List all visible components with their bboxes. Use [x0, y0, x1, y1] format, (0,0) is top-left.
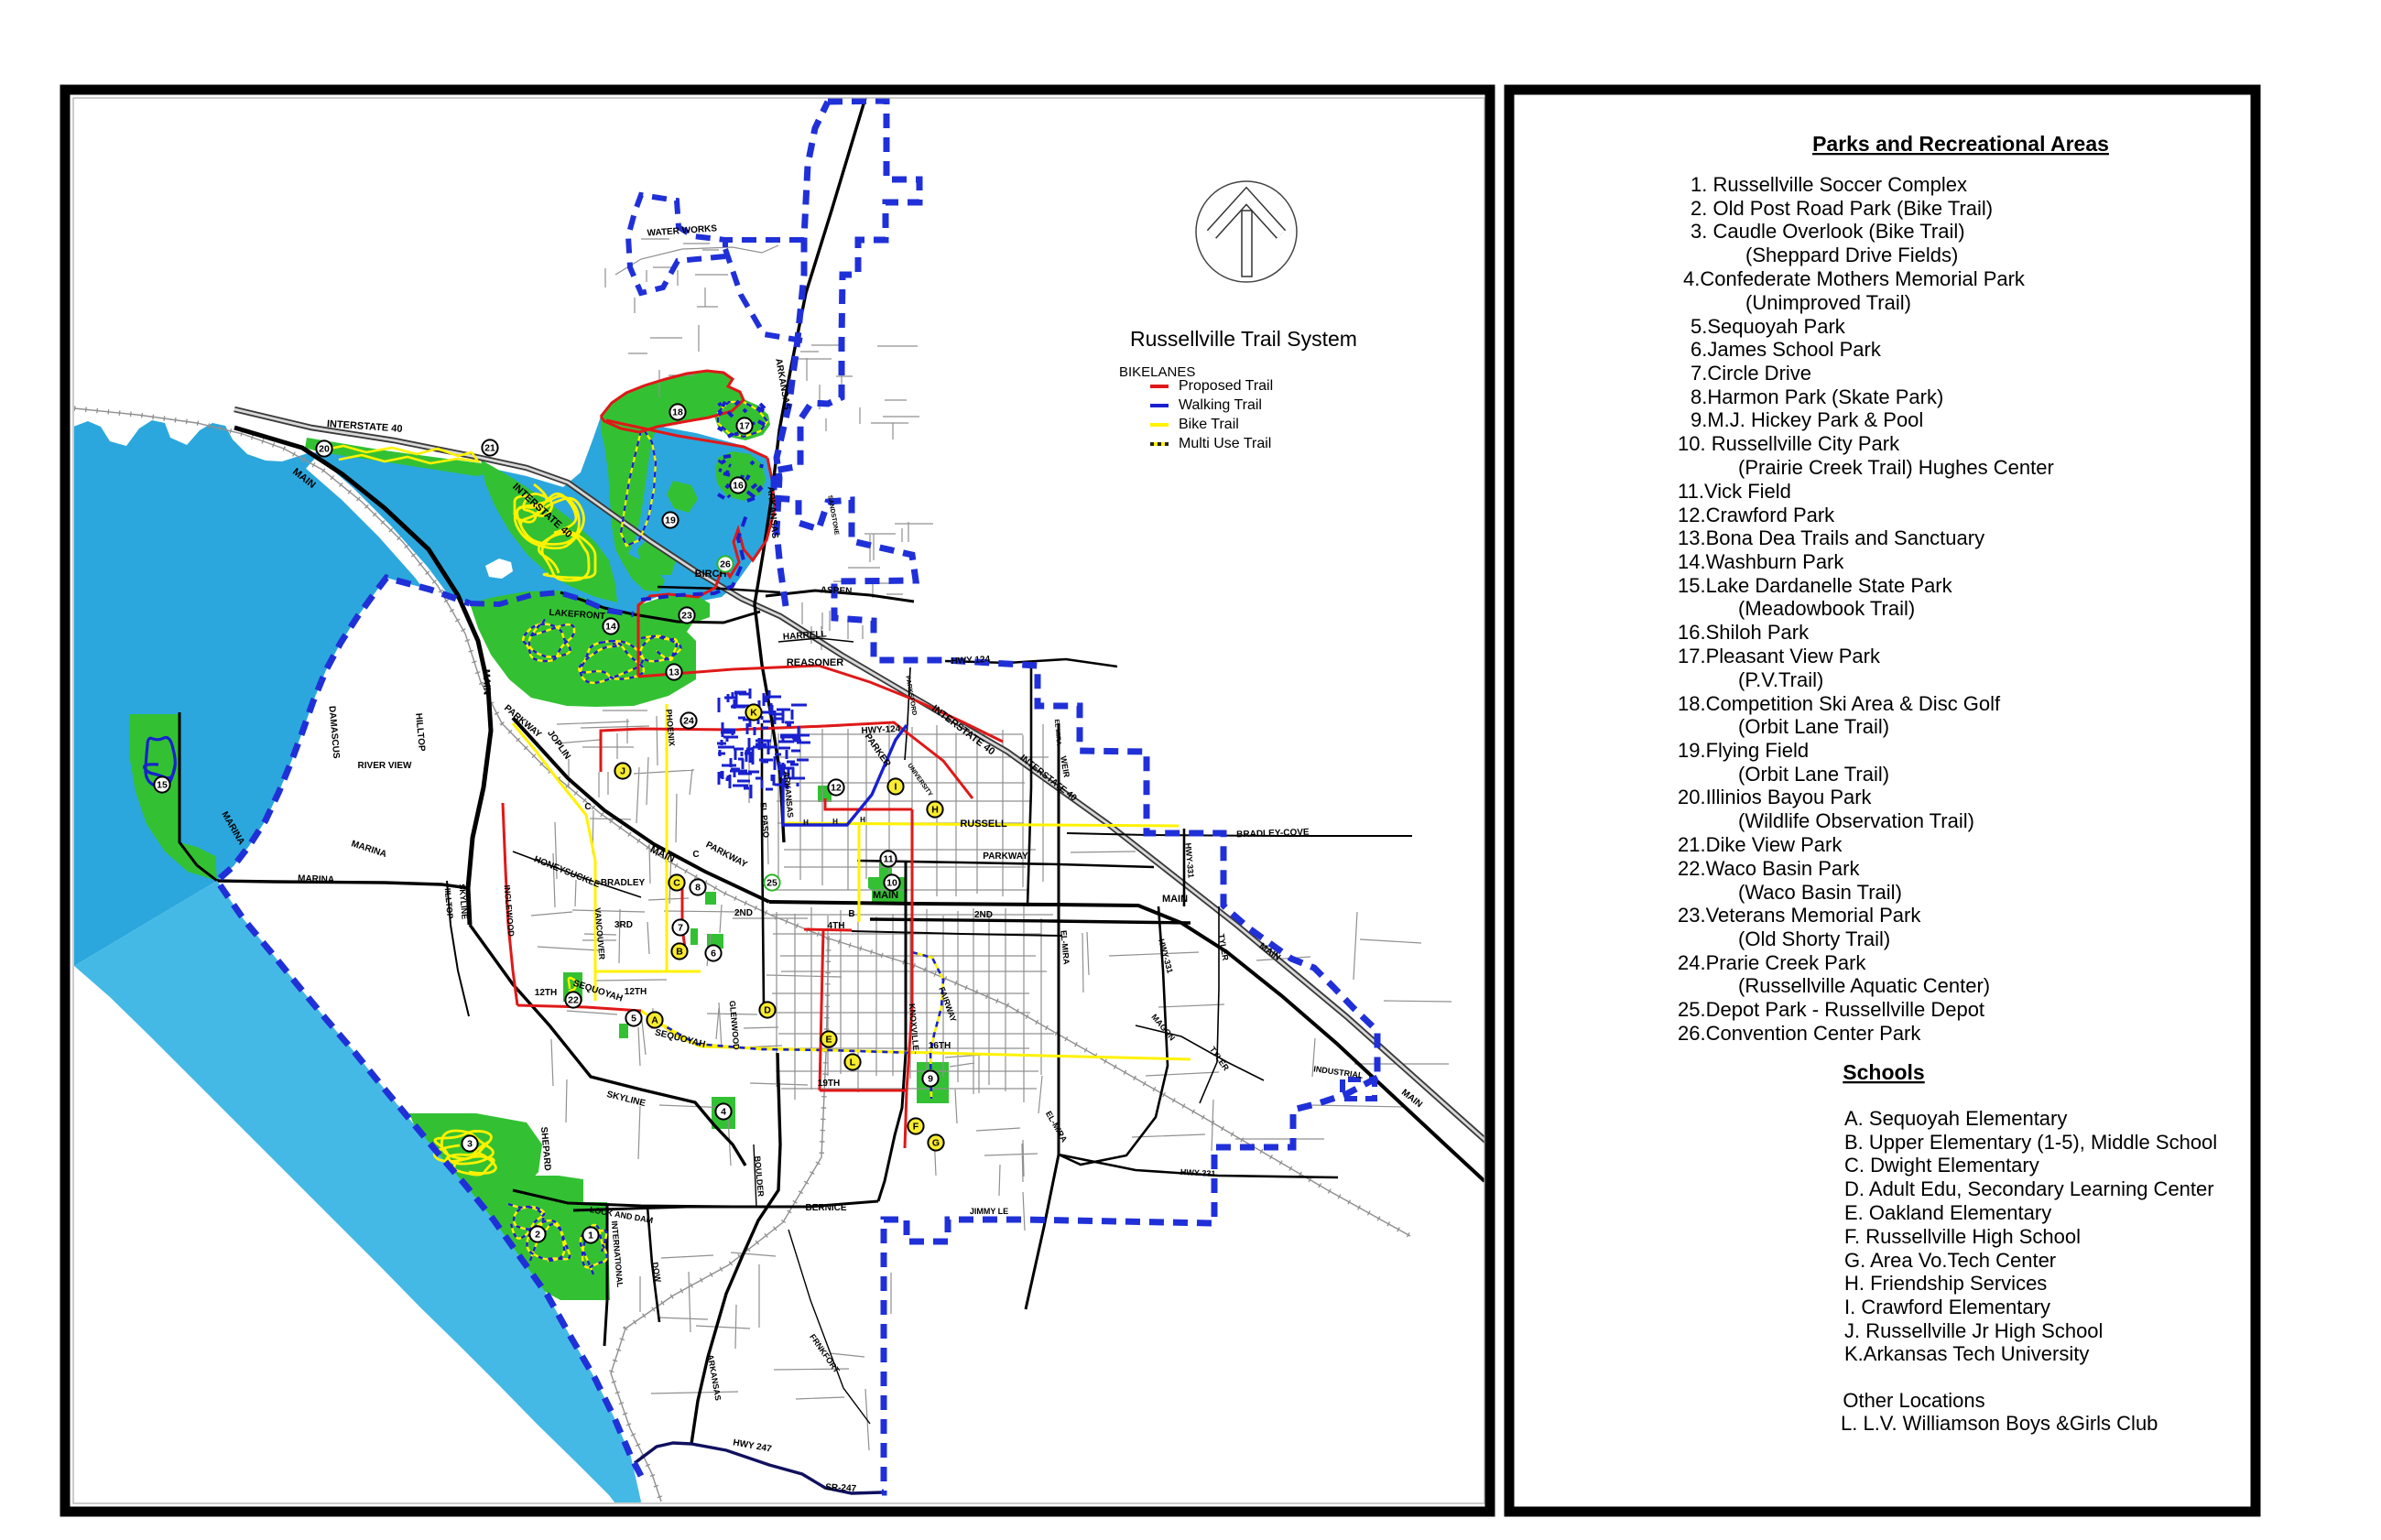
svg-text:8: 8 — [695, 883, 701, 894]
svg-text:21: 21 — [484, 443, 495, 454]
svg-text:22: 22 — [568, 995, 579, 1006]
svg-text:(Waco Basin Trail): (Waco Basin Trail) — [1738, 881, 1902, 904]
svg-text:ASPEN: ASPEN — [821, 585, 853, 596]
svg-text:H: H — [931, 805, 939, 816]
svg-text:10: 10 — [886, 878, 897, 889]
svg-text:13: 13 — [669, 667, 680, 678]
svg-text:5.Sequoyah Park: 5.Sequoyah Park — [1691, 315, 1846, 338]
svg-text:9.M.J. Hickey Park & Pool: 9.M.J. Hickey Park & Pool — [1691, 408, 1923, 431]
svg-text:(Meadowbook Trail): (Meadowbook Trail) — [1738, 597, 1915, 620]
svg-text:MARINA: MARINA — [298, 873, 334, 884]
svg-text:(Orbit Lane Trail): (Orbit Lane Trail) — [1738, 715, 1889, 738]
svg-text:6.James School Park: 6.James School Park — [1691, 338, 1882, 361]
svg-text:RUSSELL: RUSSELL — [960, 819, 1007, 830]
svg-text:Bike Trail: Bike Trail — [1179, 417, 1239, 432]
svg-text:19: 19 — [665, 515, 676, 526]
svg-text:3: 3 — [467, 1139, 473, 1150]
svg-text:C. Dwight Elementary: C. Dwight Elementary — [1844, 1154, 2039, 1177]
svg-text:1. Russellville Soccer Complex: 1. Russellville Soccer Complex — [1691, 173, 1967, 196]
svg-text:17.Pleasant View Park: 17.Pleasant View Park — [1678, 645, 1881, 667]
svg-text:26.Convention Center Park: 26.Convention Center Park — [1678, 1022, 1921, 1045]
svg-text:19TH: 19TH — [818, 1079, 840, 1089]
svg-text:JIMMY LE: JIMMY LE — [970, 1207, 1008, 1216]
svg-text:14: 14 — [605, 622, 616, 633]
svg-text:4TH: 4TH — [828, 921, 845, 931]
svg-text:24: 24 — [683, 716, 694, 727]
svg-text:F. Russellville High School: F. Russellville High School — [1844, 1225, 2081, 1248]
svg-text:16.Shiloh Park: 16.Shiloh Park — [1678, 621, 1810, 644]
svg-text:18.Competition Ski Area & Disc: 18.Competition Ski Area & Disc Golf — [1678, 692, 2001, 715]
svg-text:B. Upper Elementary (1-5), Mid: B. Upper Elementary (1-5), Middle School — [1844, 1131, 2217, 1154]
svg-text:12: 12 — [831, 783, 842, 794]
svg-text:13.Bona Dea Trails and Sanctua: 13.Bona Dea Trails and Sanctuary — [1678, 526, 1984, 549]
svg-text:Multi Use Trail: Multi Use Trail — [1179, 436, 1271, 451]
svg-text:C: C — [673, 878, 680, 889]
svg-text:15: 15 — [157, 780, 168, 791]
svg-text:L. L.V. Williamson Boys &Girls: L. L.V. Williamson Boys &Girls Club — [1841, 1412, 2158, 1435]
svg-text:2ND: 2ND — [734, 908, 753, 918]
svg-text:B: B — [676, 947, 683, 958]
svg-text:HWY-331: HWY-331 — [1180, 1167, 1216, 1178]
svg-text:9: 9 — [928, 1074, 933, 1085]
svg-text:(Wildlife Observation Trail): (Wildlife Observation Trail) — [1738, 809, 1974, 832]
svg-text:20.Illinios Bayou Park: 20.Illinios Bayou Park — [1678, 786, 1873, 808]
svg-text:11: 11 — [883, 854, 893, 865]
svg-text:5: 5 — [631, 1014, 636, 1025]
svg-text:24.Prarie Creek Park: 24.Prarie Creek Park — [1678, 951, 1866, 974]
svg-text:MAIN: MAIN — [481, 669, 493, 696]
svg-text:(Sheppard Drive Fields): (Sheppard Drive Fields) — [1745, 244, 1958, 266]
svg-text:MAIN: MAIN — [873, 890, 898, 901]
svg-text:12.Crawford Park: 12.Crawford Park — [1678, 504, 1835, 526]
svg-text:F: F — [913, 1122, 919, 1133]
svg-text:10. Russellville City Park: 10. Russellville City Park — [1678, 432, 1900, 455]
svg-text:12TH: 12TH — [625, 987, 647, 997]
svg-text:26: 26 — [720, 559, 731, 570]
svg-text:19.Flying Field: 19.Flying Field — [1678, 739, 1809, 762]
svg-text:H: H — [803, 819, 809, 827]
svg-text:C: C — [584, 802, 591, 812]
svg-text:BRADLEY: BRADLEY — [601, 878, 646, 888]
svg-text:17: 17 — [739, 421, 750, 432]
svg-text:16TH: 16TH — [929, 1041, 951, 1051]
svg-text:E: E — [825, 1035, 832, 1046]
svg-text:6: 6 — [711, 949, 716, 960]
svg-text:HWY 124: HWY 124 — [951, 655, 991, 667]
svg-text:K.Arkansas Tech University: K.Arkansas Tech University — [1844, 1342, 2089, 1365]
svg-text:RIVER VIEW: RIVER VIEW — [358, 761, 412, 771]
svg-text:(Orbit Lane Trail): (Orbit Lane Trail) — [1738, 763, 1889, 786]
svg-text:Walking Trail: Walking Trail — [1179, 397, 1262, 413]
svg-text:3RD: 3RD — [614, 920, 633, 930]
svg-text:20: 20 — [319, 444, 330, 455]
svg-text:D: D — [764, 1005, 771, 1016]
svg-text:A: A — [651, 1015, 658, 1026]
svg-text:J. Russellville Jr High School: J. Russellville Jr High School — [1844, 1319, 2103, 1342]
svg-text:E. Oakland Elementary: E. Oakland Elementary — [1844, 1201, 2051, 1224]
svg-text:7.Circle Drive: 7.Circle Drive — [1691, 362, 1811, 385]
svg-text:7: 7 — [678, 923, 683, 934]
svg-text:L: L — [850, 1057, 856, 1068]
svg-text:21.Dike View Park: 21.Dike View Park — [1678, 833, 1843, 856]
svg-text:15.Lake Dardanelle State Park: 15.Lake Dardanelle State Park — [1678, 574, 1953, 597]
svg-text:Parks and Recreational Areas: Parks and Recreational Areas — [1812, 132, 2109, 156]
svg-text:11.Vick Field: 11.Vick Field — [1678, 480, 1791, 503]
svg-text:G. Area Vo.Tech Center: G. Area Vo.Tech Center — [1844, 1249, 2056, 1272]
svg-text:Proposed Trail: Proposed Trail — [1179, 378, 1273, 394]
svg-text:16: 16 — [733, 481, 744, 492]
svg-text:25: 25 — [766, 878, 777, 889]
svg-text:REASONER: REASONER — [787, 657, 843, 668]
svg-text:3. Caudle Overlook (Bike Trai: 3. Caudle Overlook (Bike Trail) — [1691, 220, 1965, 243]
svg-text:2: 2 — [535, 1230, 540, 1241]
svg-text:(P.V.Trail): (P.V.Trail) — [1738, 668, 1823, 691]
svg-text:H: H — [860, 816, 865, 824]
svg-text:12TH: 12TH — [535, 988, 557, 998]
svg-text:4: 4 — [721, 1107, 726, 1118]
svg-text:(Unimproved Trail): (Unimproved Trail) — [1745, 291, 1911, 314]
svg-text:2ND: 2ND — [974, 910, 993, 920]
svg-text:MAIN: MAIN — [1162, 894, 1188, 905]
svg-text:G: G — [932, 1138, 940, 1149]
svg-text:Schools: Schools — [1843, 1060, 1924, 1084]
svg-text:1: 1 — [588, 1231, 593, 1242]
svg-text:(Russellville Aquatic Center): (Russellville Aquatic Center) — [1738, 974, 1990, 997]
svg-text:D. Adult Edu, Secondary Learni: D. Adult Edu, Secondary Learning Center — [1844, 1177, 2214, 1200]
svg-text:PARKWAY: PARKWAY — [983, 851, 1028, 862]
svg-text:22.Waco Basin Park: 22.Waco Basin Park — [1678, 857, 1860, 880]
svg-text:14.Washburn Park: 14.Washburn Park — [1678, 550, 1844, 573]
svg-text:Other Locations: Other Locations — [1843, 1389, 1984, 1412]
svg-text:Russellville Trail System: Russellville Trail System — [1130, 327, 1357, 351]
svg-text:BERNICE: BERNICE — [805, 1203, 846, 1213]
svg-text:C: C — [692, 850, 699, 860]
svg-text:I. Crawford Elementary: I. Crawford Elementary — [1844, 1296, 2050, 1318]
svg-text:I: I — [895, 782, 897, 793]
svg-text:18: 18 — [672, 407, 683, 418]
svg-text:K: K — [750, 708, 757, 719]
svg-text:(Prairie Creek Trail) Hughes C: (Prairie Creek Trail) Hughes Center — [1738, 456, 2054, 479]
svg-text:H: H — [832, 818, 838, 826]
svg-text:25.Depot Park - Russellville D: 25.Depot Park - Russellville Depot — [1678, 998, 1984, 1021]
svg-text:H. Friendship Services: H. Friendship Services — [1844, 1272, 2047, 1295]
svg-text:23: 23 — [681, 611, 692, 622]
svg-text:23.Veterans Memorial Park: 23.Veterans Memorial Park — [1678, 904, 1921, 927]
svg-text:8.Harmon Park (Skate Park): 8.Harmon Park (Skate Park) — [1691, 385, 1943, 408]
svg-text:4.Confederate Mothers Memorial: 4.Confederate Mothers Memorial Park — [1683, 267, 2026, 290]
svg-text:J: J — [620, 766, 625, 777]
svg-text:(Old Shorty Trail): (Old Shorty Trail) — [1738, 927, 1890, 950]
svg-text:SR-247: SR-247 — [825, 1482, 857, 1494]
svg-text:2. Old Post Road Park (Bike Tr: 2. Old Post Road Park (Bike Trail) — [1691, 197, 1993, 220]
svg-text:B: B — [848, 909, 854, 919]
svg-text:A. Sequoyah Elementary: A. Sequoyah Elementary — [1844, 1107, 2067, 1130]
